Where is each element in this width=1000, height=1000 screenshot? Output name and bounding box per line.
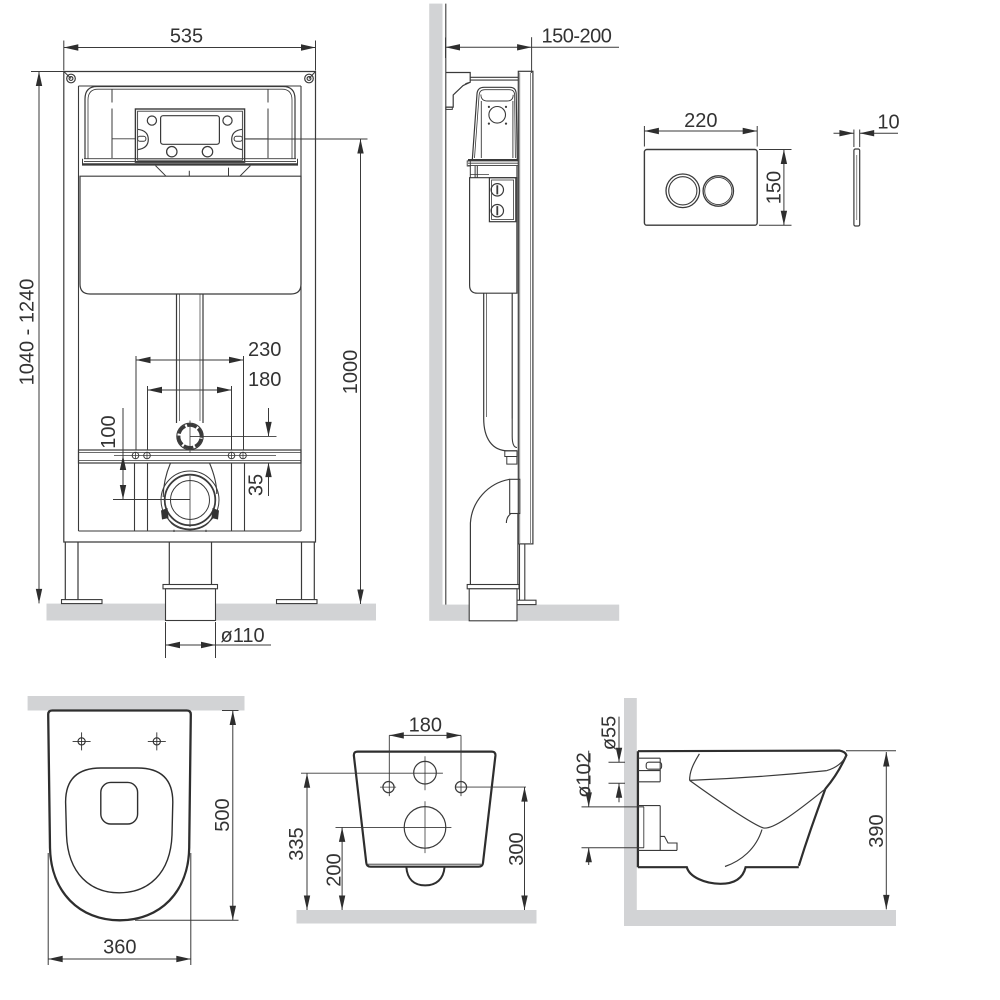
svg-text:220: 220 [684, 110, 717, 132]
svg-text:ø110: ø110 [221, 625, 265, 647]
svg-text:535: 535 [170, 26, 203, 48]
svg-text:100: 100 [98, 415, 120, 448]
svg-text:230: 230 [248, 339, 281, 361]
svg-text:35: 35 [246, 474, 268, 496]
svg-text:200: 200 [323, 853, 345, 886]
svg-text:390: 390 [866, 814, 888, 847]
svg-text:335: 335 [286, 827, 308, 860]
svg-text:1040 - 1240: 1040 - 1240 [17, 279, 39, 386]
svg-text:150: 150 [764, 171, 786, 204]
svg-text:ø55: ø55 [599, 716, 621, 750]
svg-text:ø102: ø102 [574, 752, 596, 798]
svg-text:10: 10 [877, 112, 899, 134]
svg-text:180: 180 [248, 369, 281, 391]
svg-text:180: 180 [409, 714, 442, 736]
svg-text:360: 360 [103, 936, 136, 958]
svg-text:300: 300 [506, 832, 528, 865]
svg-text:1000: 1000 [340, 350, 362, 395]
svg-text:500: 500 [212, 798, 234, 831]
svg-text:150-200: 150-200 [542, 26, 612, 48]
